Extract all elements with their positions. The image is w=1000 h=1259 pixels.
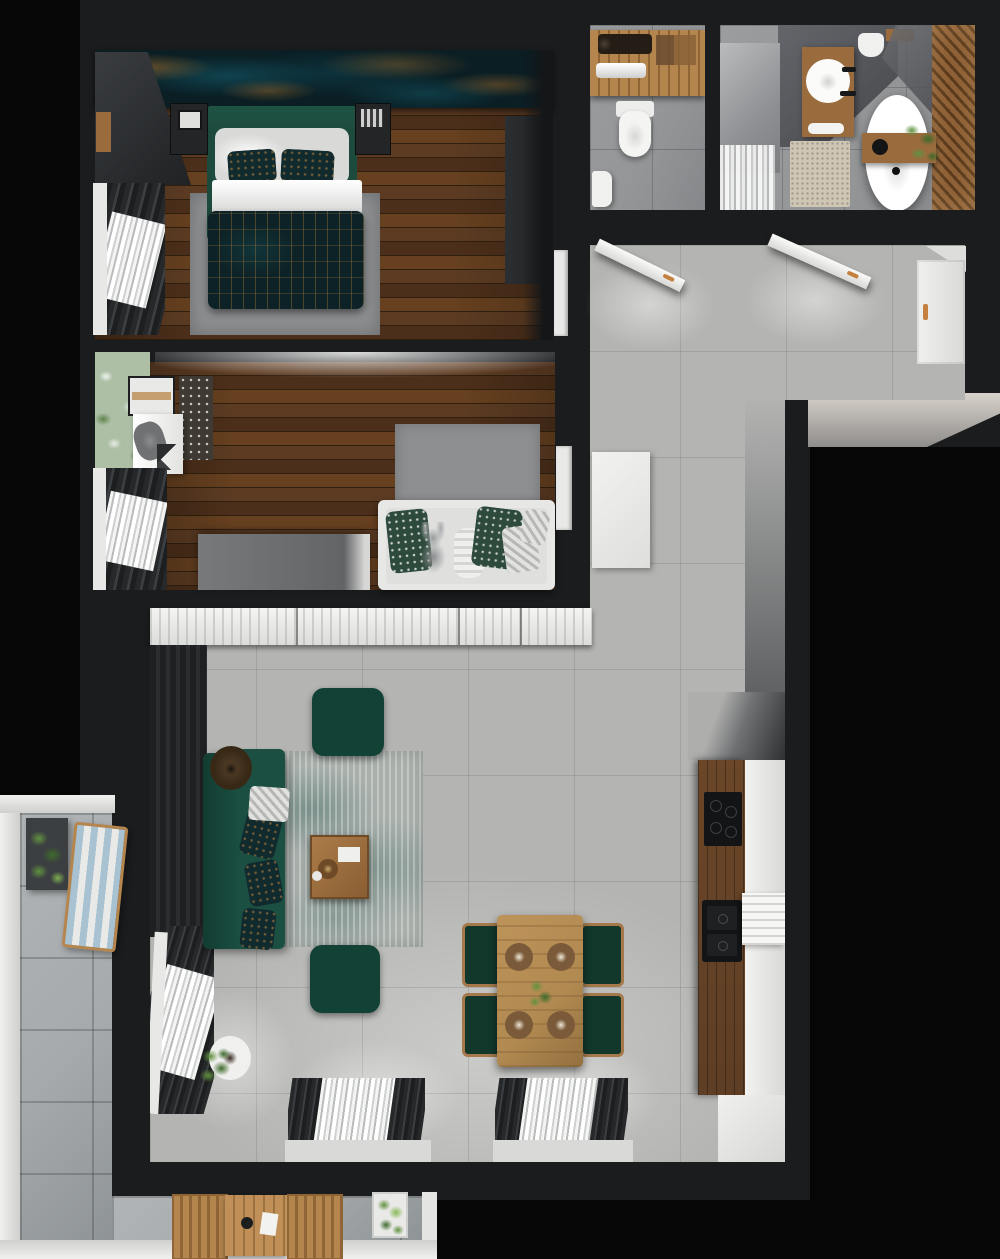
balcony-planter-2 — [372, 1192, 408, 1238]
sideboard-divider-3 — [520, 608, 522, 645]
outdoor-table-item — [241, 1217, 253, 1229]
sink-drain-1 — [718, 914, 728, 924]
round-sink — [806, 59, 850, 103]
wall-cabinet — [96, 112, 111, 152]
master-bedroom — [95, 50, 553, 340]
sideboard-divider-2 — [458, 608, 460, 645]
table-centerpiece-plant — [523, 971, 557, 1015]
place-setting-4 — [547, 1011, 575, 1039]
bed-duvet — [208, 211, 364, 309]
dining-table — [497, 915, 583, 1067]
nightstand-tray — [361, 109, 383, 127]
pattern-panel — [179, 376, 213, 460]
hall-white-cabinet — [592, 452, 650, 568]
planter-plants — [20, 822, 74, 888]
kids-top-glow — [155, 352, 555, 378]
entrance-door-handle — [923, 304, 928, 320]
kids-window — [93, 468, 167, 590]
bathroom — [720, 25, 975, 210]
pendant-lamp — [210, 746, 252, 790]
outdoor-chair-left — [172, 1194, 228, 1259]
kitchen-corner-cabinet — [718, 1095, 785, 1162]
wc-trough-sink — [596, 63, 646, 78]
burner-1 — [710, 800, 722, 812]
floor-plan-scene — [0, 0, 1000, 1259]
burner-3 — [710, 822, 722, 834]
nightstand-left — [170, 103, 208, 155]
dining-chair-right-1 — [580, 923, 624, 987]
nightstand-right — [355, 103, 391, 155]
caddy-kettle — [872, 139, 888, 155]
bath-plant — [898, 113, 944, 171]
toilet-bowl — [619, 111, 651, 157]
accent-pillow-right — [280, 149, 335, 185]
shower-glass — [720, 145, 775, 210]
wc-door-handle — [662, 273, 675, 282]
vanity-towel — [808, 123, 844, 134]
bathroom-door-handle — [847, 270, 860, 279]
worktop-white-box — [742, 893, 785, 945]
kids-bedroom-door — [556, 446, 572, 530]
kids-bedroom — [95, 352, 575, 590]
wc-room — [590, 25, 705, 210]
burner-2 — [725, 806, 737, 818]
table-lamp — [178, 110, 202, 130]
wc-counter-boxes — [656, 35, 696, 65]
outdoor-table-paper — [260, 1212, 279, 1236]
kitchen-sink — [702, 900, 742, 962]
kids-wardrobe — [198, 534, 370, 590]
kitchen-tall-unit — [688, 692, 785, 760]
balcony — [0, 795, 437, 1259]
kids-window-sill — [93, 468, 106, 590]
master-bedroom-door — [554, 250, 568, 336]
dining-chair-right-2 — [580, 993, 624, 1057]
balcony-planter-box — [26, 818, 68, 890]
window-b-sill — [493, 1140, 633, 1162]
cooktop — [704, 792, 742, 846]
place-setting-2 — [547, 943, 575, 971]
window-b — [495, 1078, 628, 1142]
desk-items — [157, 444, 179, 470]
entrance-door — [917, 260, 965, 364]
teal-wallpaper-wall — [95, 50, 553, 108]
wc-corner-basin — [592, 171, 612, 207]
bookcase-shelf — [132, 392, 171, 400]
outdoor-chair-right — [287, 1194, 343, 1259]
balcony-parapet-top — [0, 795, 115, 813]
master-dark-right-zone — [523, 50, 553, 340]
bookcase — [128, 376, 175, 416]
window-sill — [93, 183, 107, 335]
bath-toilet — [858, 33, 884, 57]
place-setting-1 — [505, 943, 533, 971]
planter-2-plants — [370, 1190, 410, 1240]
burner-4 — [725, 826, 737, 838]
sink-faucet-2 — [840, 91, 856, 96]
daybed — [378, 500, 555, 590]
sink-faucet — [842, 67, 856, 72]
bed-sheet-fold — [212, 180, 362, 214]
bath-rug — [790, 141, 850, 207]
daybed-bunny-toy — [414, 522, 452, 576]
toilet — [616, 101, 654, 159]
sideboard-divider-1 — [296, 608, 298, 645]
outside-area-right — [810, 447, 1000, 1259]
master-window — [93, 183, 165, 335]
place-setting-3 — [505, 1011, 533, 1039]
pouf-top — [312, 688, 384, 756]
kids-rug — [395, 424, 540, 506]
balcony-parapet-right — [422, 1192, 437, 1240]
wc-towel-rolls — [598, 34, 652, 54]
balcony-parapet-left — [0, 795, 20, 1259]
deck-chair — [62, 822, 129, 953]
sink-drain-2 — [718, 941, 728, 951]
outdoor-table — [225, 1195, 287, 1256]
window-b-sheer — [519, 1078, 602, 1142]
sideboard-row — [150, 608, 592, 645]
